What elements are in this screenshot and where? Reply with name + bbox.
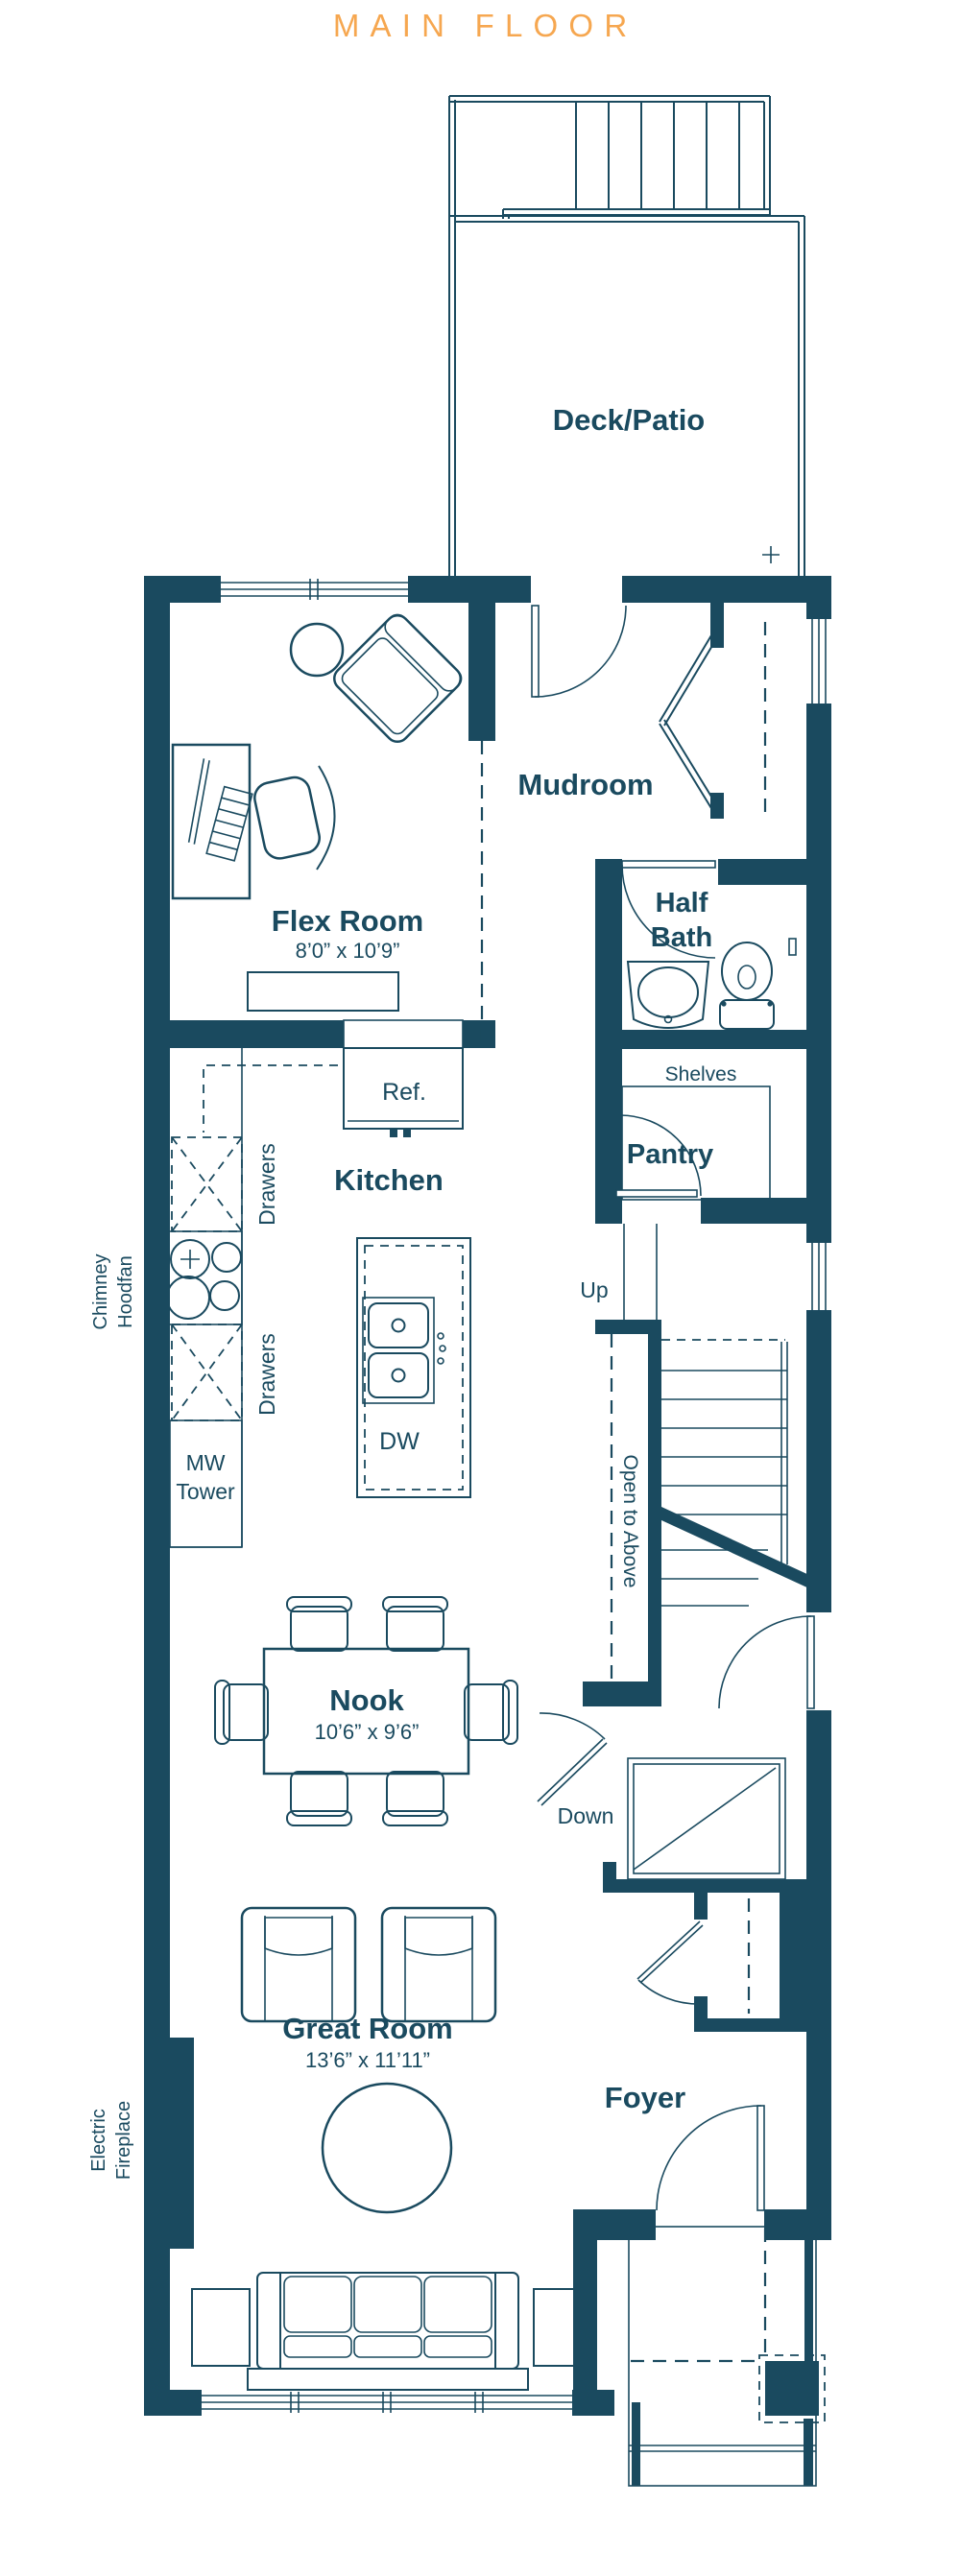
deck-stairs — [503, 102, 770, 219]
porch-post-right — [804, 2419, 813, 2486]
great-room: Great Room 13’6” x 11’11” — [192, 1908, 591, 2390]
nook: Nook 10’6” x 9’6” — [215, 1597, 517, 1825]
microwave-label-line1: MW — [186, 1450, 226, 1475]
great-room-dims: 13’6” x 11’11” — [305, 2048, 430, 2072]
desk — [173, 745, 252, 898]
pantry: Shelves Pantry — [622, 1063, 770, 1200]
kitchen: MW Tower Drawers Drawers Kitchen — [165, 1048, 470, 1547]
microwave-tower: MW Tower — [170, 1420, 242, 1547]
keyboard — [206, 787, 252, 861]
shelves-label: Shelves — [665, 1063, 737, 1085]
doors — [532, 606, 814, 2210]
floor-plan-drawing: Deck/Patio — [0, 0, 960, 2576]
cooktop — [165, 1231, 242, 1324]
toilet — [720, 942, 774, 1029]
hose-bib-icon — [762, 546, 780, 563]
stair-side-window — [812, 1243, 826, 1310]
stair-treads — [661, 1371, 787, 1606]
down-label: Down — [558, 1803, 614, 1828]
mudroom-closet-doors — [660, 626, 722, 818]
mudroom: Mudroom — [517, 626, 722, 818]
deck-label: Deck/Patio — [553, 403, 706, 437]
stair-stringer — [661, 1507, 811, 1589]
front-door — [657, 2106, 764, 2210]
up-label: Up — [580, 1277, 608, 1302]
desk-chair — [252, 766, 334, 870]
chimney-callout-line2: Hoodfan — [115, 1255, 136, 1328]
fireplace-bump — [170, 2038, 194, 2249]
flex-room-dims: 8’0” x 10’9” — [296, 939, 400, 963]
callouts: Chimney Hoodfan Electric Fireplace — [88, 1254, 136, 2181]
great-room-window — [202, 2392, 572, 2413]
vanity-sink — [628, 962, 708, 1028]
half-bath-label-line2: Bath — [651, 922, 712, 953]
flex-armchair — [329, 610, 465, 746]
chimney-callout-line1: Chimney — [90, 1254, 111, 1330]
basement-stair-door — [538, 1713, 607, 1805]
corner-cabinet-upper — [172, 1137, 242, 1231]
porch-column — [765, 2361, 819, 2416]
half-bath-label-line1: Half — [656, 888, 708, 918]
mudroom-side-window — [812, 619, 826, 704]
console-table — [248, 972, 398, 1011]
drawers-upper-label: Drawers — [254, 1143, 279, 1226]
foyer-closet-door — [637, 1921, 703, 2004]
microwave-label-line2: Tower — [176, 1479, 235, 1504]
fireplace-callout-line1: Electric — [88, 2109, 109, 2172]
armchair-left — [242, 1908, 355, 2021]
nook-dims: 10’6” x 9’6” — [315, 1720, 420, 1744]
deck-patio: Deck/Patio — [449, 96, 804, 576]
armchair-right — [382, 1908, 495, 2021]
toilet-paper-holder-icon — [789, 939, 796, 955]
flex-room-label: Flex Room — [272, 904, 423, 938]
corner-cabinet-lower — [172, 1324, 242, 1420]
upper-cabinets — [204, 1065, 338, 1133]
open-to-above-label: Open to Above — [619, 1455, 641, 1588]
nook-label: Nook — [329, 1683, 404, 1717]
side-entry-door — [719, 1616, 814, 1708]
front-porch — [629, 2227, 825, 2486]
drawers-lower-label: Drawers — [254, 1333, 279, 1416]
great-room-label: Great Room — [282, 2012, 452, 2045]
refrigerator: Ref. — [344, 1020, 463, 1137]
windows — [202, 579, 826, 2413]
mudroom-label: Mudroom — [517, 768, 653, 801]
floor-plan-canvas: MAIN FLOOR — [0, 0, 960, 2576]
walls — [144, 576, 831, 2486]
round-table — [291, 624, 343, 676]
pantry-label: Pantry — [627, 1139, 713, 1170]
flex-room: Flex Room 8’0” x 10’9” — [173, 610, 466, 1011]
deck-entry-door — [532, 606, 626, 697]
foyer-label: Foyer — [605, 2081, 685, 2114]
kitchen-label: Kitchen — [334, 1163, 444, 1197]
side-table-left — [192, 2289, 250, 2366]
kitchen-island: DW — [357, 1238, 470, 1497]
flex-window — [221, 579, 408, 600]
fireplace-callout-line2: Fireplace — [113, 2101, 134, 2180]
island-sink — [363, 1298, 445, 1403]
area-rug — [323, 2084, 451, 2212]
fridge-label: Ref. — [382, 1079, 426, 1106]
understair-closet — [628, 1758, 785, 1879]
dishwasher-label: DW — [379, 1428, 420, 1455]
porch-post-left — [632, 2402, 640, 2486]
sofa — [248, 2273, 528, 2390]
